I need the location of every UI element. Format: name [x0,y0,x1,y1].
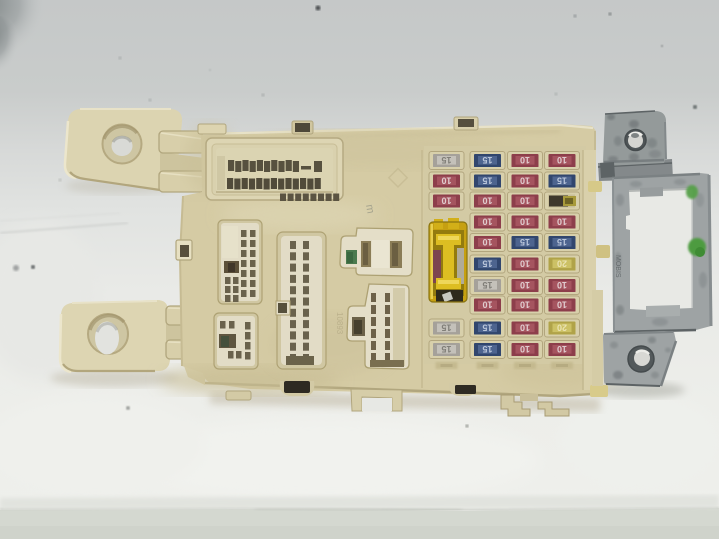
svg-text:10: 10 [482,217,492,227]
svg-text:10: 10 [520,344,530,354]
svg-text:10: 10 [520,196,530,206]
svg-text:10: 10 [520,176,530,186]
svg-text:MOBIS: MOBIS [614,255,621,278]
svg-text:20: 20 [557,259,567,269]
svg-text:15: 15 [557,176,567,186]
svg-text:15: 15 [557,237,567,247]
svg-text:10: 10 [557,300,567,310]
svg-text:15: 15 [482,280,492,290]
svg-text:15: 15 [441,155,451,165]
svg-text:10: 10 [520,300,530,310]
svg-text:10: 10 [520,280,530,290]
svg-text:15: 15 [441,323,451,333]
svg-text:15: 15 [520,237,530,247]
svg-text:10893: 10893 [335,312,344,335]
svg-text:15: 15 [441,344,451,354]
svg-text:10: 10 [520,259,530,269]
svg-text:15: 15 [482,176,492,186]
svg-text:15: 15 [482,259,492,269]
svg-text:20: 20 [557,323,567,333]
svg-text:10: 10 [557,344,567,354]
svg-text:10: 10 [557,217,567,227]
svg-text:10: 10 [520,217,530,227]
svg-text:10: 10 [441,196,451,206]
svg-text:10: 10 [557,155,567,165]
svg-text:10: 10 [441,176,451,186]
svg-text:15: 15 [482,155,492,165]
svg-text:10: 10 [557,280,567,290]
svg-text:15: 15 [482,344,492,354]
svg-text:10: 10 [482,237,492,247]
svg-text:10: 10 [482,196,492,206]
svg-text:10: 10 [520,155,530,165]
svg-text:10: 10 [520,323,530,333]
svg-text:15: 15 [482,323,492,333]
svg-text:10: 10 [482,300,492,310]
